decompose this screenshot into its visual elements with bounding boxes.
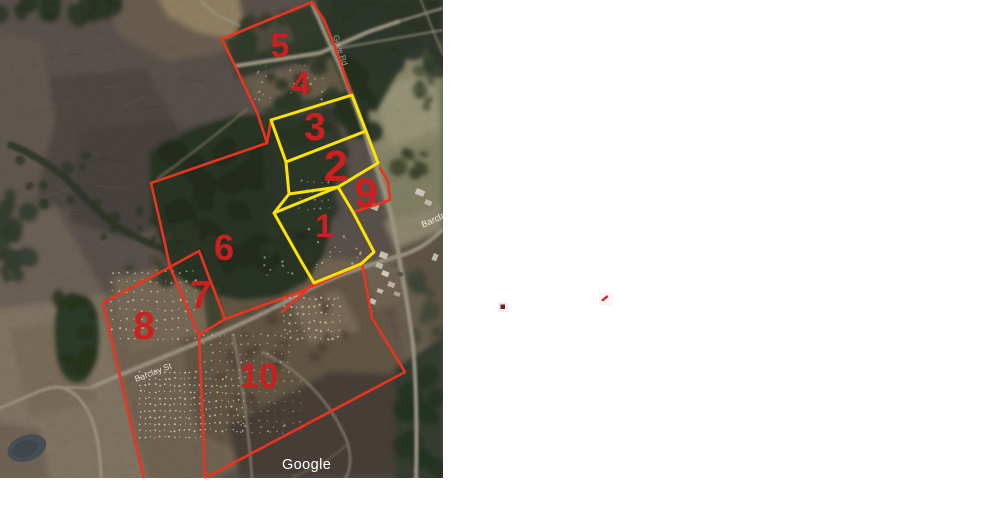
svg-text:1: 1 — [315, 208, 333, 244]
svg-text:10: 10 — [240, 357, 279, 396]
svg-text:3: 3 — [304, 106, 326, 149]
svg-text:4: 4 — [292, 66, 310, 102]
svg-text:5: 5 — [271, 27, 289, 64]
svg-text:Google: Google — [282, 457, 331, 473]
svg-text:8: 8 — [133, 305, 155, 348]
svg-text:2: 2 — [324, 142, 348, 191]
svg-text:9: 9 — [354, 169, 377, 216]
svg-text:7: 7 — [190, 274, 212, 317]
svg-text:6: 6 — [214, 227, 234, 268]
